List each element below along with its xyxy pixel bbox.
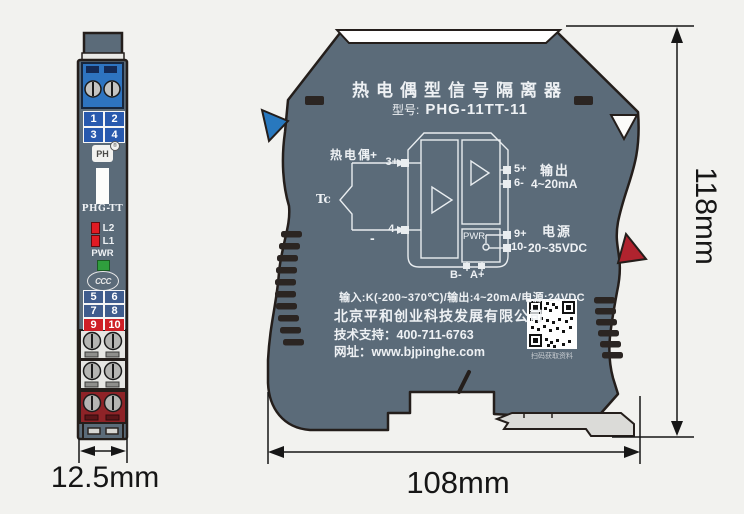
registered-mark: ® — [110, 141, 120, 151]
model-label: 型号: — [392, 101, 419, 118]
terminal-number: 1 — [84, 112, 103, 126]
led-red — [91, 235, 100, 247]
product-title: 热电偶型信号隔离器 — [320, 76, 600, 101]
height-dimension: 118mm — [689, 156, 721, 276]
terminal-4-minus: 4- — [374, 223, 398, 235]
sensor-label: 热电偶 — [330, 146, 372, 163]
side-terminal-grid-bottom: 5 6 7 8 9 10 — [83, 290, 125, 330]
side-bottom-terminals — [80, 330, 126, 439]
width-dimension-front: 108mm — [378, 465, 538, 501]
terminal-number: 4 — [105, 128, 124, 142]
width-dimension-side: 12.5mm — [40, 461, 170, 495]
ccc-mark: CCC — [87, 271, 119, 291]
led-row-l1: L1 — [78, 235, 127, 247]
led-label: L1 — [103, 236, 115, 247]
bus-b-label: B- — [450, 269, 462, 281]
website: 网址：www.bjpinghe.com — [334, 341, 485, 360]
terminal-10-minus: 10- — [511, 241, 527, 253]
din-latch — [497, 413, 634, 436]
terminal-5-plus: 5+ — [514, 163, 527, 175]
led-green — [97, 260, 110, 271]
side-model-label: PHG-TT — [78, 204, 127, 214]
terminal-number: 2 — [105, 112, 124, 126]
tc-label: Tc — [316, 192, 331, 206]
terminal-number: 6 — [105, 291, 124, 303]
din-clip-red — [618, 234, 646, 263]
bus-a-label: A+ — [470, 269, 484, 281]
terminal-number: 5 — [84, 291, 103, 303]
side-terminal-grid-top: 1 2 3 4 — [83, 111, 125, 143]
address-slot — [96, 168, 109, 204]
pwr-box-label: PWR — [463, 231, 485, 242]
spec-line: 输入:K(-200~370℃)/输出:4~20mA/电源:24VDC — [330, 289, 594, 305]
terminal-number: 8 — [105, 305, 124, 317]
led-label: L2 — [103, 223, 115, 234]
side-top-terminal — [82, 63, 123, 108]
power-range: 20~35VDC — [528, 241, 587, 255]
terminal-number: 10 — [105, 319, 124, 331]
pwr-label: PWR — [78, 248, 127, 259]
output-range: 4~20mA — [531, 177, 577, 191]
model-value: PHG-11TT-11 — [425, 101, 528, 118]
terminal-number: 9 — [84, 319, 103, 331]
terminal-6-minus: 6- — [514, 177, 524, 189]
qr-caption: 扫码获取资料 — [523, 351, 581, 361]
model-row: 型号: PHG-11TT-11 — [320, 101, 600, 118]
terminal-number: 3 — [84, 128, 103, 142]
product-dimension-diagram: 1 2 3 4 PH ® PHG-TT L2 L1 PWR CCC 5 6 7 … — [0, 0, 744, 514]
terminal-3-plus: 3+ — [374, 156, 398, 168]
led-red — [91, 222, 100, 234]
company-name: 北京平和创业科技发展有限公司 — [334, 306, 544, 326]
terminal-number: 7 — [84, 305, 103, 317]
power-label: 电源 — [542, 221, 572, 240]
terminal-9-plus: 9+ — [514, 228, 527, 240]
top-terminal-strip — [337, 30, 560, 43]
led-row-l2: L2 — [78, 222, 127, 234]
